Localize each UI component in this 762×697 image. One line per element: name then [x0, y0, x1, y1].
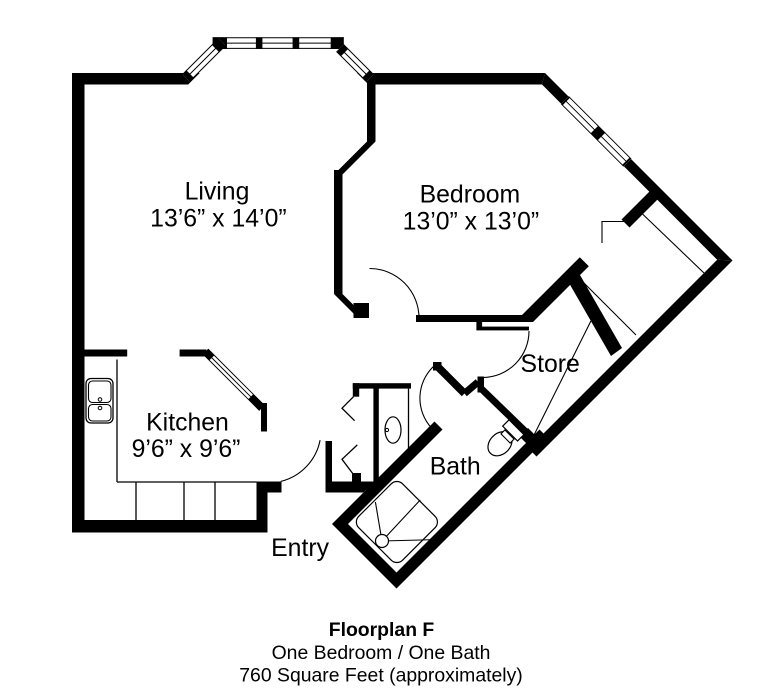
- svg-text:Floorplan F: Floorplan F: [329, 619, 435, 641]
- svg-text:13’0” x 13’0”: 13’0” x 13’0”: [403, 209, 539, 236]
- svg-text:Store: Store: [521, 351, 580, 378]
- svg-text:Bath: Bath: [430, 454, 481, 481]
- svg-text:Kitchen: Kitchen: [146, 410, 229, 437]
- svg-text:One Bedroom / One Bath: One Bedroom / One Bath: [272, 642, 491, 664]
- svg-text:760 Square Feet (approximately: 760 Square Feet (approximately): [239, 665, 522, 687]
- svg-text:Bedroom: Bedroom: [420, 181, 521, 208]
- svg-text:Entry: Entry: [271, 535, 329, 562]
- svg-text:Living: Living: [185, 178, 250, 205]
- svg-text:9’6” x 9’6”: 9’6” x 9’6”: [132, 436, 241, 463]
- svg-text:13’6” x 14’0”: 13’6” x 14’0”: [150, 205, 286, 232]
